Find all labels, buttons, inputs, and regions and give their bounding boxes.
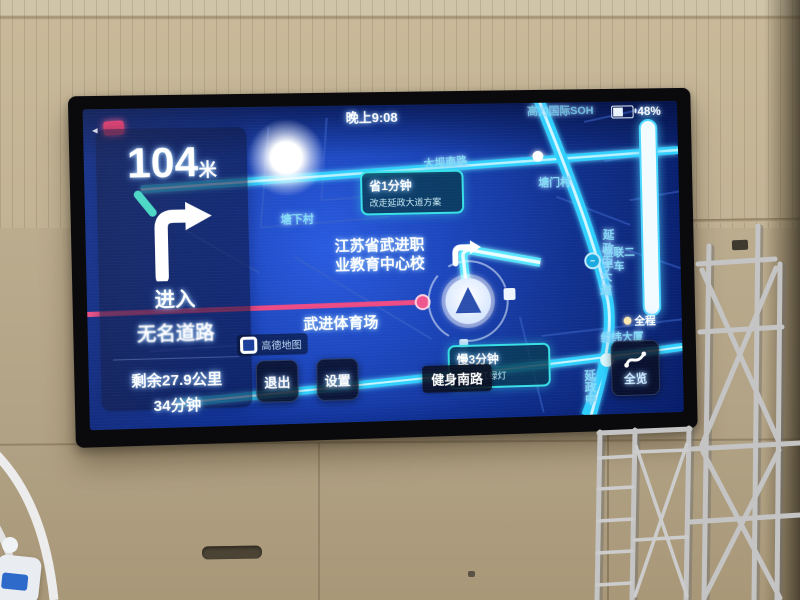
scaffolding (0, 0, 800, 600)
photo-scene: 晚上9:08 高力国际SOH 48% ◄ 104米 进入 无名道路 (0, 0, 800, 600)
foreground-object (0, 554, 42, 600)
foreground-object-blue (1, 572, 29, 591)
